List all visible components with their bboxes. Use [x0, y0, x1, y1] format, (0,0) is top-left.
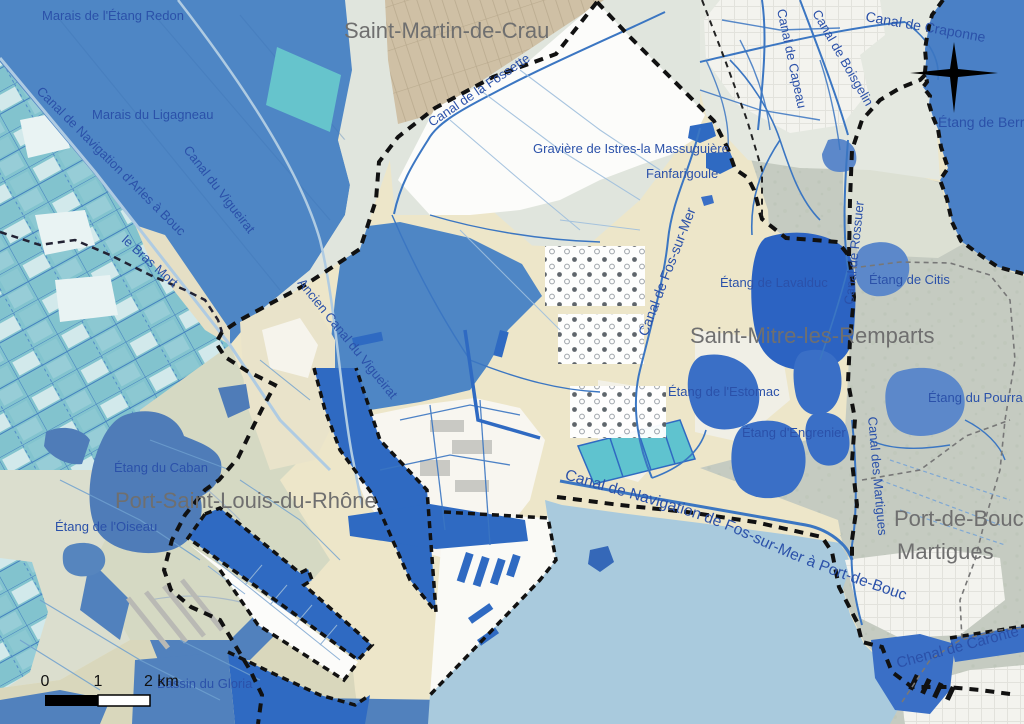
svg-text:0: 0	[41, 673, 50, 690]
svg-text:Fanfarigoule: Fanfarigoule	[646, 166, 718, 181]
svg-text:Étang du Caban: Étang du Caban	[114, 460, 208, 475]
svg-text:2 km: 2 km	[144, 673, 179, 690]
svg-text:Gravière de Istres-la Massugui: Gravière de Istres-la Massuguière	[533, 141, 729, 156]
svg-text:Port-de-Bouc: Port-de-Bouc	[894, 506, 1024, 531]
svg-text:Marais de l'Étang Redon: Marais de l'Étang Redon	[42, 8, 184, 23]
svg-text:Martigues: Martigues	[897, 539, 994, 564]
svg-text:Étang d'Engrenier: Étang d'Engrenier	[742, 425, 846, 440]
svg-text:Port-Saint-Louis-du-Rhône: Port-Saint-Louis-du-Rhône	[115, 488, 377, 513]
svg-text:Saint-Mitre-les-Remparts: Saint-Mitre-les-Remparts	[690, 323, 935, 348]
svg-text:1: 1	[94, 673, 103, 690]
svg-text:Étang du Pourra: Étang du Pourra	[928, 390, 1023, 405]
svg-text:Étang de l'Estomac: Étang de l'Estomac	[668, 384, 780, 399]
svg-text:Étang de Citis: Étang de Citis	[869, 272, 950, 287]
svg-text:Étang de Berre: Étang de Berre	[938, 114, 1024, 130]
svg-text:Saint-Martin-de-Crau: Saint-Martin-de-Crau	[344, 18, 549, 43]
svg-text:Étang de l'Oiseau: Étang de l'Oiseau	[55, 519, 157, 534]
svg-text:Étang de Lavalduc: Étang de Lavalduc	[720, 275, 828, 290]
svg-text:Marais du Ligagneau: Marais du Ligagneau	[92, 107, 213, 122]
